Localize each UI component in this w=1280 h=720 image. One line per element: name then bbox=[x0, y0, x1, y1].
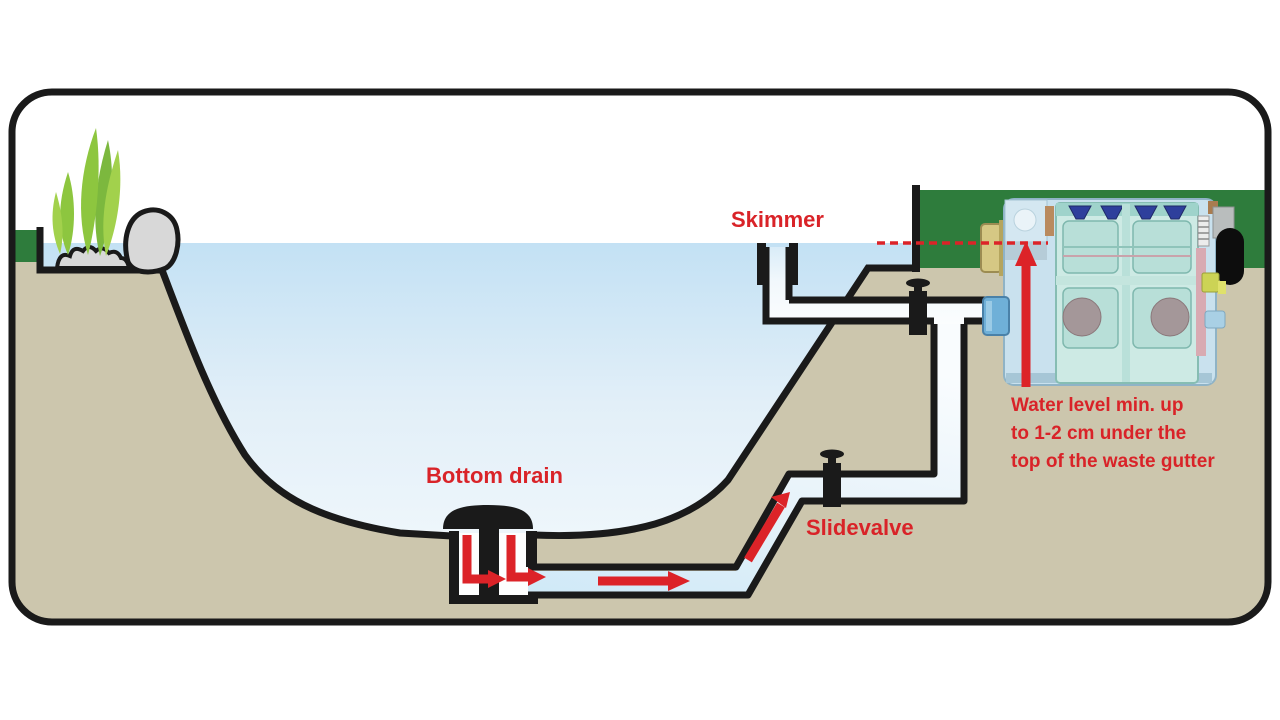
filter-fitting-cap bbox=[1218, 281, 1226, 294]
drum-filter-icon bbox=[981, 199, 1244, 385]
filter-handle-black bbox=[1216, 228, 1244, 285]
waste-gutter-wall bbox=[912, 185, 920, 272]
filter-fitting-yellow bbox=[1202, 273, 1219, 292]
filter-bracket bbox=[1045, 206, 1054, 236]
water-level-note-line3: top of the waste gutter bbox=[1011, 448, 1215, 476]
pond-filtration-diagram: Skimmer Bottom drain Slidevalve Water le… bbox=[0, 0, 1280, 720]
water-level-note-line2: to 1-2 cm under the bbox=[1011, 420, 1215, 448]
skimmer-label: Skimmer bbox=[731, 207, 824, 233]
drain-sump-right-wall bbox=[526, 531, 537, 567]
grass-edge-left bbox=[12, 230, 40, 262]
drain-sump-bottom bbox=[449, 595, 538, 604]
filter-gutter-inlet-gold bbox=[981, 224, 1002, 272]
skimmer-mouth-right-wall bbox=[789, 243, 798, 285]
filter-mesh-edge bbox=[1196, 248, 1206, 356]
water-level-note: Water level min. up to 1-2 cm under the … bbox=[1011, 392, 1215, 476]
skimmer-mouth-left-wall bbox=[757, 243, 766, 285]
filter-drum-end bbox=[1151, 298, 1189, 336]
water-level-note-line1: Water level min. up bbox=[1011, 392, 1215, 420]
diagram-canvas bbox=[0, 0, 1280, 720]
bottom-drain-label: Bottom drain bbox=[426, 463, 563, 489]
filter-mid-rail bbox=[1056, 276, 1198, 285]
filter-inlet-highlight bbox=[986, 301, 992, 331]
filter-drum-end bbox=[1063, 298, 1101, 336]
filter-inlet-port bbox=[1014, 209, 1036, 231]
slidevalve-label: Slidevalve bbox=[806, 515, 914, 541]
drain-sump-left-wall bbox=[449, 531, 459, 603]
rock-icon bbox=[126, 210, 178, 272]
filter-center-post bbox=[1122, 204, 1130, 382]
filter-outlet-stub bbox=[1205, 311, 1225, 328]
